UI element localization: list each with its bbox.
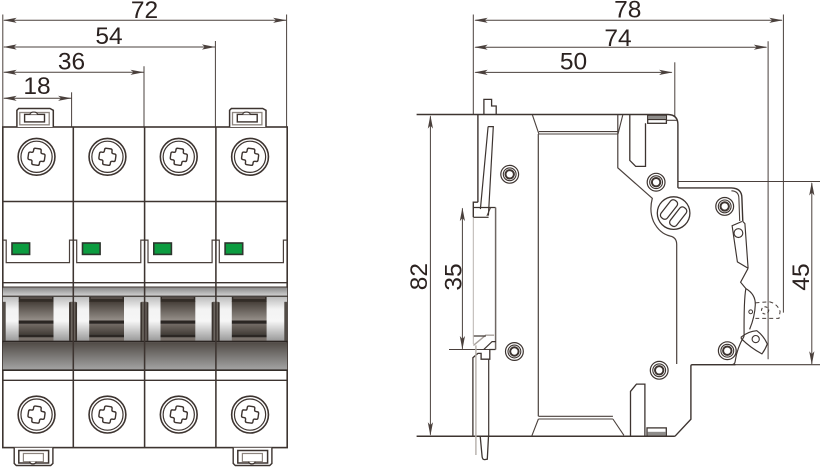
svg-text:50: 50: [560, 49, 587, 76]
svg-text:18: 18: [23, 73, 50, 100]
svg-text:35: 35: [441, 263, 468, 290]
svg-text:36: 36: [58, 48, 85, 75]
svg-text:78: 78: [614, 0, 641, 24]
svg-text:54: 54: [95, 23, 122, 50]
svg-text:72: 72: [131, 0, 158, 24]
svg-text:45: 45: [788, 263, 815, 290]
svg-text:82: 82: [406, 263, 433, 290]
svg-text:74: 74: [604, 25, 631, 52]
